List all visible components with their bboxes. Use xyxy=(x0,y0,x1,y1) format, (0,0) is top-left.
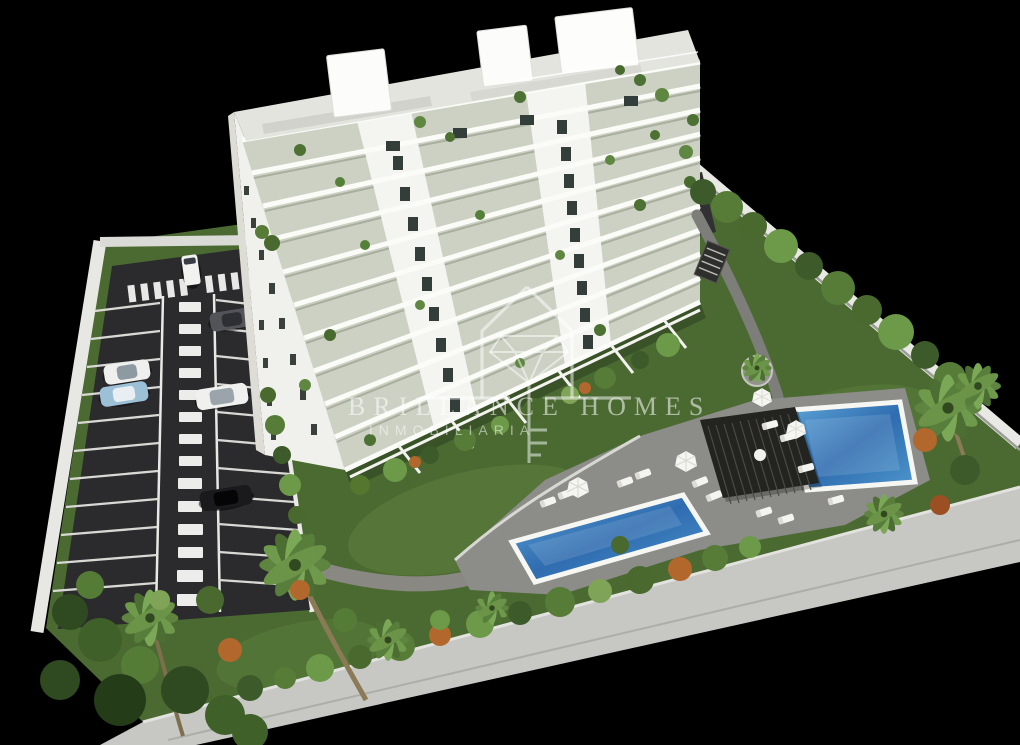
property-render-image: BRILLANCE HOMES INMOBILIARIA xyxy=(0,0,1020,745)
render-scene xyxy=(0,0,1020,745)
roof-stair-box xyxy=(477,25,533,87)
top-wall xyxy=(100,240,260,242)
roof-penthouse-box xyxy=(555,7,639,74)
pergola-table xyxy=(754,449,766,461)
roof-stair-box xyxy=(326,49,391,118)
